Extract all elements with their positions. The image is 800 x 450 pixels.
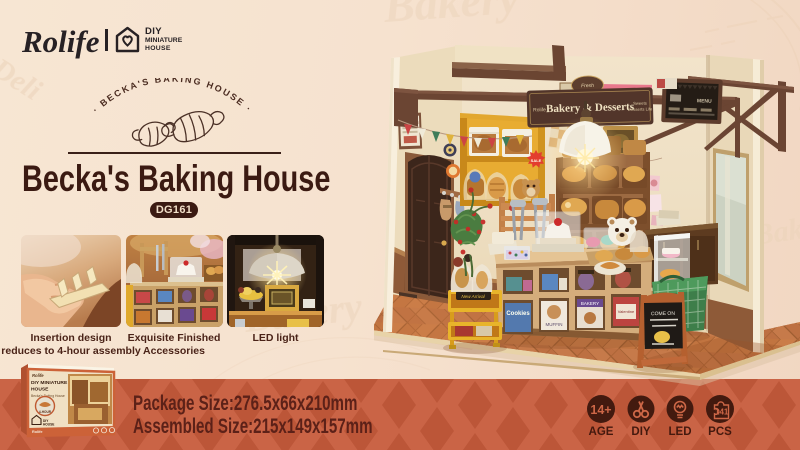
svg-text:AGE: AGE (589, 426, 614, 437)
svg-text:DIY MINIATURE: DIY MINIATURE (31, 380, 68, 386)
svg-text:DIY: DIY (631, 426, 651, 437)
svg-text:New Arrival: New Arrival (461, 294, 485, 299)
svg-text:141: 141 (715, 408, 729, 417)
svg-text:SALE: SALE (531, 158, 542, 163)
svg-text:Desserts Life: Desserts Life (628, 106, 653, 112)
svg-text:Cookies: Cookies (506, 311, 530, 317)
svg-text:Fresh: Fresh (581, 83, 594, 89)
svg-text:Rolife: Rolife (533, 107, 546, 113)
svg-text:COME ON: COME ON (651, 311, 675, 317)
svg-text:HOUSE: HOUSE (31, 387, 49, 393)
svg-text:Bakery: Bakery (381, 0, 521, 32)
svg-text:BAKERY: BAKERY (581, 301, 599, 306)
svg-text:HOUSE: HOUSE (43, 423, 54, 427)
svg-text:Valentine: Valentine (618, 309, 635, 314)
svg-text:Rolife: Rolife (32, 373, 44, 378)
svg-text:4-HOUR: 4-HOUR (39, 410, 52, 414)
svg-text:PCS: PCS (708, 426, 732, 437)
svg-text:Rolife: Rolife (32, 430, 43, 434)
svg-text:MUFFIN: MUFFIN (546, 322, 563, 327)
svg-text:LED: LED (669, 426, 692, 437)
svg-text:MENU: MENU (697, 98, 712, 105)
svg-text:Deli: Deli (0, 51, 48, 107)
svg-text:14+: 14+ (590, 403, 611, 417)
svg-text:Sweets: Sweets (633, 101, 647, 106)
